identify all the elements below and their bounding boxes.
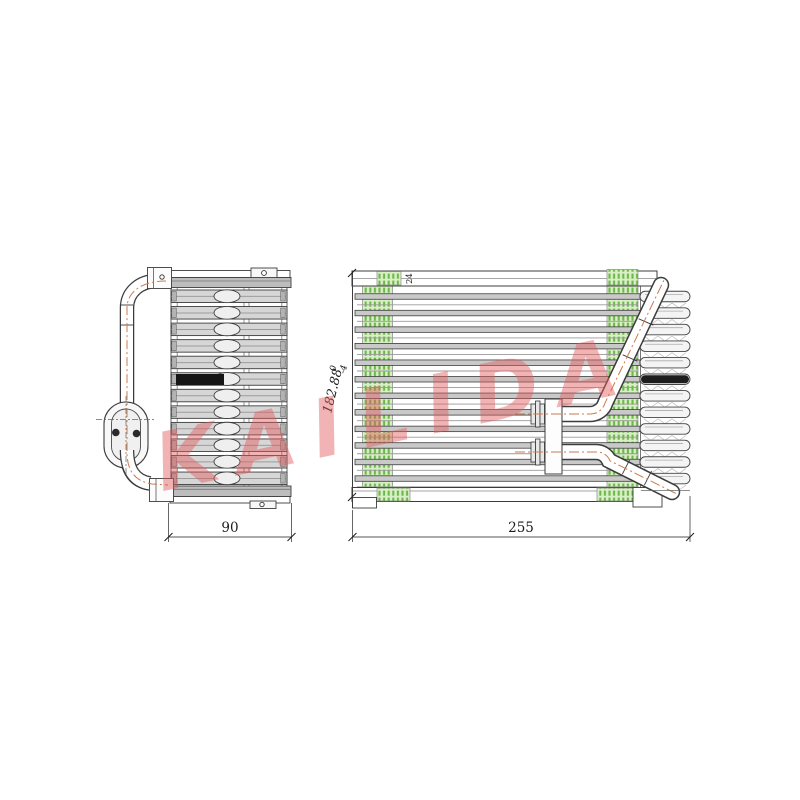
pipe-fittings (531, 399, 562, 474)
front-width-label: 255 (508, 520, 534, 536)
drawing-canvas: 90 (0, 0, 800, 800)
left-green-side-plate (363, 286, 393, 497)
side-view: 90 (96, 268, 296, 543)
side-view-top-header (168, 268, 291, 288)
bracket-hole-right (133, 430, 141, 438)
side-view-bottom-header (168, 486, 291, 509)
front-view: 24 (318, 269, 694, 542)
black-tube-bend (641, 375, 689, 383)
side-width-label: 90 (221, 520, 238, 536)
front-view-top-header: 24 (352, 270, 657, 287)
black-plate-segment (176, 374, 224, 385)
fitting-plate (545, 399, 562, 474)
front-height-tol-lower: -4 (338, 364, 350, 375)
front-view-bottom-header (352, 488, 662, 509)
dimension-front-height: 182.88 0 -4 (318, 269, 356, 501)
evaporator-technical-drawing: 90 (0, 0, 800, 800)
bracket-hole-left (112, 429, 120, 437)
top-pipe-fitting (148, 268, 172, 289)
side-view-plate-stack (171, 290, 287, 485)
bottom-pipe-fitting (150, 479, 174, 502)
depth-note-label: 24 (405, 273, 415, 284)
